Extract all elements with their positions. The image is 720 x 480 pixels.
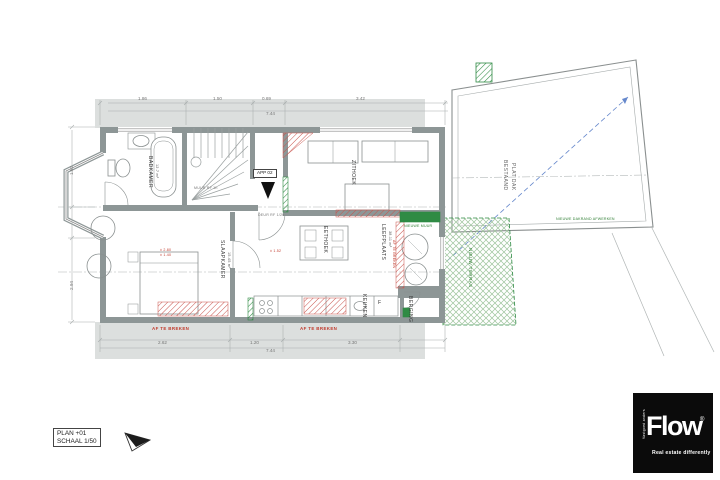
demolish-note-left: AF TE BREKEN (152, 326, 189, 331)
dim-bottom-1: 2.62 (158, 341, 167, 346)
dim-bottom-4: 7.44 (266, 349, 275, 354)
title-block: PLAN +01 SCHAAL 1/50 (53, 428, 101, 447)
room-label-keuken: KEUKEN (361, 294, 366, 318)
logo-registered-mark: ® (700, 417, 704, 423)
new-wall-note: NIEUWE MUUR (404, 225, 432, 229)
dim-left-2: 2.94 (70, 281, 75, 290)
roof-label-line2: PLAT DAK (510, 163, 515, 191)
red-dim-b: ± 1.40 (160, 254, 171, 258)
room-label-slaapkamer: SLAAPKAMER (219, 240, 224, 279)
dim-top-1: 1.86 (138, 97, 147, 102)
red-dim-c: ± 1.52 (270, 250, 281, 254)
fridge-label: F (378, 300, 381, 306)
boundary-lines (612, 226, 714, 356)
floor-plan-sheet: BADKAMER 12.7 m² SLAAPKAMER 15.45 m² ZIT… (0, 0, 720, 480)
dim-top-4: 3.42 (356, 97, 365, 102)
dimension-lines (68, 100, 448, 352)
dim-bottom-2: 1.20 (250, 341, 259, 346)
new-roof-element (476, 63, 492, 82)
room-label-zithoek: ZITHOEK (350, 160, 355, 185)
terrace-label: NIEUW TERRAS (468, 248, 472, 288)
roof-label-line1: BESTAAND (502, 160, 507, 191)
demolish-note-side: AF TE BREKEN (391, 240, 395, 268)
plan-scale: SCHAAL 1/50 (57, 438, 97, 446)
dim-left-1: 1.62 (70, 166, 75, 175)
dim-top-5: 7.44 (266, 112, 275, 117)
room-label-berging: BERGING (407, 296, 412, 323)
unit-label-app02: APP 02 (253, 169, 277, 178)
room-label-leefplaats: LEEFPLAATS (380, 224, 385, 260)
room-label-badkamer: BADKAMER (147, 156, 152, 188)
bathroom-fixtures (108, 133, 176, 197)
fire-wall-note: MUUR RF 1h (194, 187, 218, 191)
logo-brand: Flow (646, 413, 702, 440)
dim-bottom-3: 3.30 (348, 341, 357, 346)
north-arrow-icon (125, 433, 150, 451)
new-terrace (443, 218, 516, 325)
room-area-slaapkamer: 15.45 m² (226, 252, 230, 269)
demolition-hatches (158, 133, 404, 316)
dim-top-2: 1.50 (213, 97, 222, 102)
flow-logo: Vastgoed anders Flow ® Real estate diffe… (633, 393, 713, 473)
entrance-arrow-icon (261, 182, 275, 199)
roof-edge-note: NIEUWE DAKRAND AFWERKEN (556, 218, 615, 222)
floor-plan-canvas (0, 0, 720, 480)
storage-fixtures (402, 234, 428, 285)
logo-tagline: Real estate differently (652, 450, 711, 456)
room-area-badkamer: 12.7 m² (154, 164, 158, 178)
fire-door-note: DEUR RF 1/2h (258, 214, 284, 218)
existing-flat-roof (452, 60, 653, 232)
room-label-eethoek: EETHOEK (322, 226, 327, 253)
demolish-note-right: AF TE BREKEN (300, 326, 337, 331)
dim-top-3: 0.69 (262, 97, 271, 102)
plan-title: PLAN +01 (57, 430, 97, 438)
livingroom-furniture (308, 141, 428, 210)
doors (105, 182, 420, 308)
